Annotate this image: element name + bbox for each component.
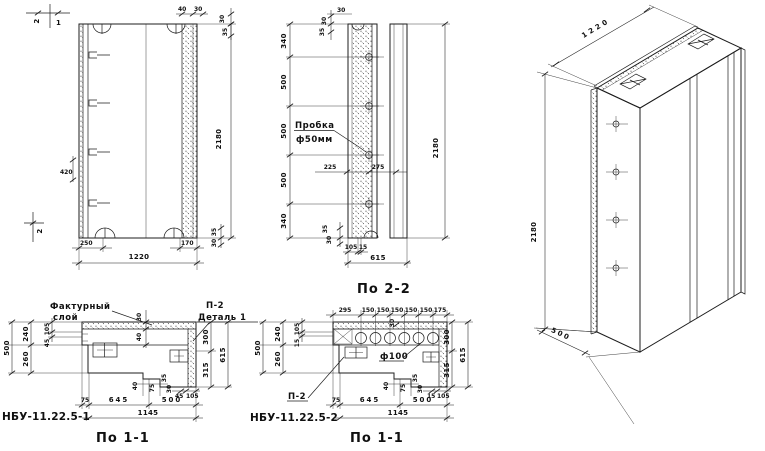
side-dim-105: 105 bbox=[345, 244, 358, 251]
s2-dim-s30: 30 bbox=[417, 385, 424, 393]
texture-label-line1: Фактурный bbox=[50, 302, 111, 312]
panel-drawing-svg: 2 1 2 420 40 30 30 35 2180 bbox=[0, 0, 765, 451]
dim-br-30: 30 bbox=[211, 239, 218, 247]
dim-1220: 1220 bbox=[129, 253, 150, 261]
dim-340-top: 340 bbox=[280, 33, 288, 49]
s1-dim-s105: 105 bbox=[186, 393, 199, 400]
dim-top-35: 35 bbox=[222, 28, 229, 36]
s1-dim-645: 645 bbox=[109, 396, 130, 404]
s2-dim-645: 645 bbox=[360, 396, 381, 404]
dim-225: 225 bbox=[324, 164, 337, 171]
s1-dim-b75: 75 bbox=[81, 397, 89, 404]
s1-dim-s75: 75 bbox=[149, 384, 156, 392]
s2-dim-150e: 150 bbox=[420, 307, 433, 314]
s1-dim-260: 260 bbox=[22, 351, 30, 367]
s2-dim-150b: 150 bbox=[377, 307, 390, 314]
s1-dim-t30: 30 bbox=[136, 313, 143, 321]
mark-2-bottom: 2 bbox=[36, 228, 44, 233]
s2-dim-150c: 150 bbox=[391, 307, 404, 314]
dim-top-30a: 30 bbox=[194, 6, 202, 13]
dim-top-40: 40 bbox=[178, 6, 186, 13]
detail-ref-text: П-2 bbox=[206, 301, 224, 311]
s2-dim-s75: 75 bbox=[400, 384, 407, 392]
section1-code: НБУ-11.22.5-1 bbox=[2, 411, 90, 423]
s1-dim-300: 300 bbox=[202, 329, 210, 345]
s2-dim-240: 240 bbox=[274, 326, 282, 342]
section2-code: НБУ-11.22.5-2 bbox=[250, 412, 338, 424]
s2-dim-300: 300 bbox=[443, 329, 451, 345]
s2-dim-500: 500 bbox=[254, 340, 262, 356]
side-dim-2180: 2180 bbox=[432, 138, 440, 159]
s1-dim-615: 615 bbox=[219, 347, 227, 363]
plug-label-line2: ф50мм bbox=[296, 135, 333, 145]
side-dim-615: 615 bbox=[370, 254, 386, 262]
texture-label-line2: слой bbox=[53, 313, 78, 323]
hole-label-text: ф100 bbox=[380, 352, 408, 362]
s1-dim-s30: 30 bbox=[166, 385, 173, 393]
s1-dim-105: 105 bbox=[44, 323, 51, 336]
s2-dim-150a: 150 bbox=[362, 307, 375, 314]
s2-dim-260: 260 bbox=[274, 351, 282, 367]
section1-caption: По 1-1 bbox=[96, 431, 150, 446]
side-dim-bot-35: 35 bbox=[322, 225, 329, 233]
s1-dim-1145: 1145 bbox=[138, 409, 159, 417]
side-dim-15: 15 bbox=[359, 244, 367, 251]
dim-500-b: 500 bbox=[280, 123, 288, 139]
mark-1-top: 1 bbox=[56, 19, 61, 27]
dim-170: 170 bbox=[181, 240, 194, 247]
s2-dim-b500: 500 bbox=[413, 396, 434, 404]
s2-dim-s40: 40 bbox=[383, 382, 390, 390]
s2-dim-t30: 30 bbox=[389, 319, 396, 327]
side-caption: По 2-2 bbox=[357, 282, 411, 297]
dim-250: 250 bbox=[80, 240, 93, 247]
side-dim-top-30: 30 bbox=[337, 7, 345, 14]
s2-dim-105: 105 bbox=[294, 323, 301, 336]
s1-dim-45: 45 bbox=[44, 339, 51, 347]
detail-label-text: Деталь 1 bbox=[198, 313, 246, 323]
s1-dim-b500: 500 bbox=[162, 396, 183, 404]
dim-275: 275 bbox=[372, 164, 385, 171]
side-dim-top-30r: 30 bbox=[321, 17, 328, 25]
s1-dim-240: 240 bbox=[22, 326, 30, 342]
s1-dim-s40: 40 bbox=[132, 382, 139, 390]
s2-dim-1145: 1145 bbox=[388, 409, 409, 417]
s2-dim-s35: 35 bbox=[412, 374, 419, 382]
p2-ref-text: П-2 bbox=[288, 392, 306, 402]
s2-dim-15: 15 bbox=[294, 339, 301, 347]
drawing-sheet: 2 1 2 420 40 30 30 35 2180 bbox=[0, 0, 765, 451]
mark-2-top: 2 bbox=[33, 18, 41, 23]
dim-2180-text: 2180 bbox=[215, 129, 223, 150]
s2-dim-s105: 105 bbox=[437, 393, 450, 400]
dim-500-c: 500 bbox=[280, 172, 288, 188]
s2-dim-315: 315 bbox=[443, 362, 451, 378]
s2-dim-150d: 150 bbox=[405, 307, 418, 314]
s1-dim-315: 315 bbox=[202, 362, 210, 378]
s1-dim-s35: 35 bbox=[161, 374, 168, 382]
s1-dim-t40: 40 bbox=[136, 333, 143, 341]
dim-420-text: 420 bbox=[60, 169, 73, 176]
s2-dim-615: 615 bbox=[459, 347, 467, 363]
dim-br-35: 35 bbox=[211, 228, 218, 236]
section2-caption: По 1-1 bbox=[350, 431, 404, 446]
dim-top-30b: 30 bbox=[219, 15, 226, 23]
dim-500-a: 500 bbox=[280, 74, 288, 90]
s2-dim-295: 295 bbox=[339, 307, 352, 314]
side-dim-bot-30: 30 bbox=[326, 236, 333, 244]
s2-dim-b75: 75 bbox=[332, 397, 340, 404]
s2-dim-175: 175 bbox=[434, 307, 447, 314]
s1-dim-500: 500 bbox=[3, 340, 11, 356]
dim-340-bottom: 340 bbox=[280, 213, 288, 229]
side-dim-top-35: 35 bbox=[319, 28, 326, 36]
iso-dim-2180: 2180 bbox=[530, 222, 538, 243]
plug-label-line1: Пробка bbox=[295, 120, 334, 131]
